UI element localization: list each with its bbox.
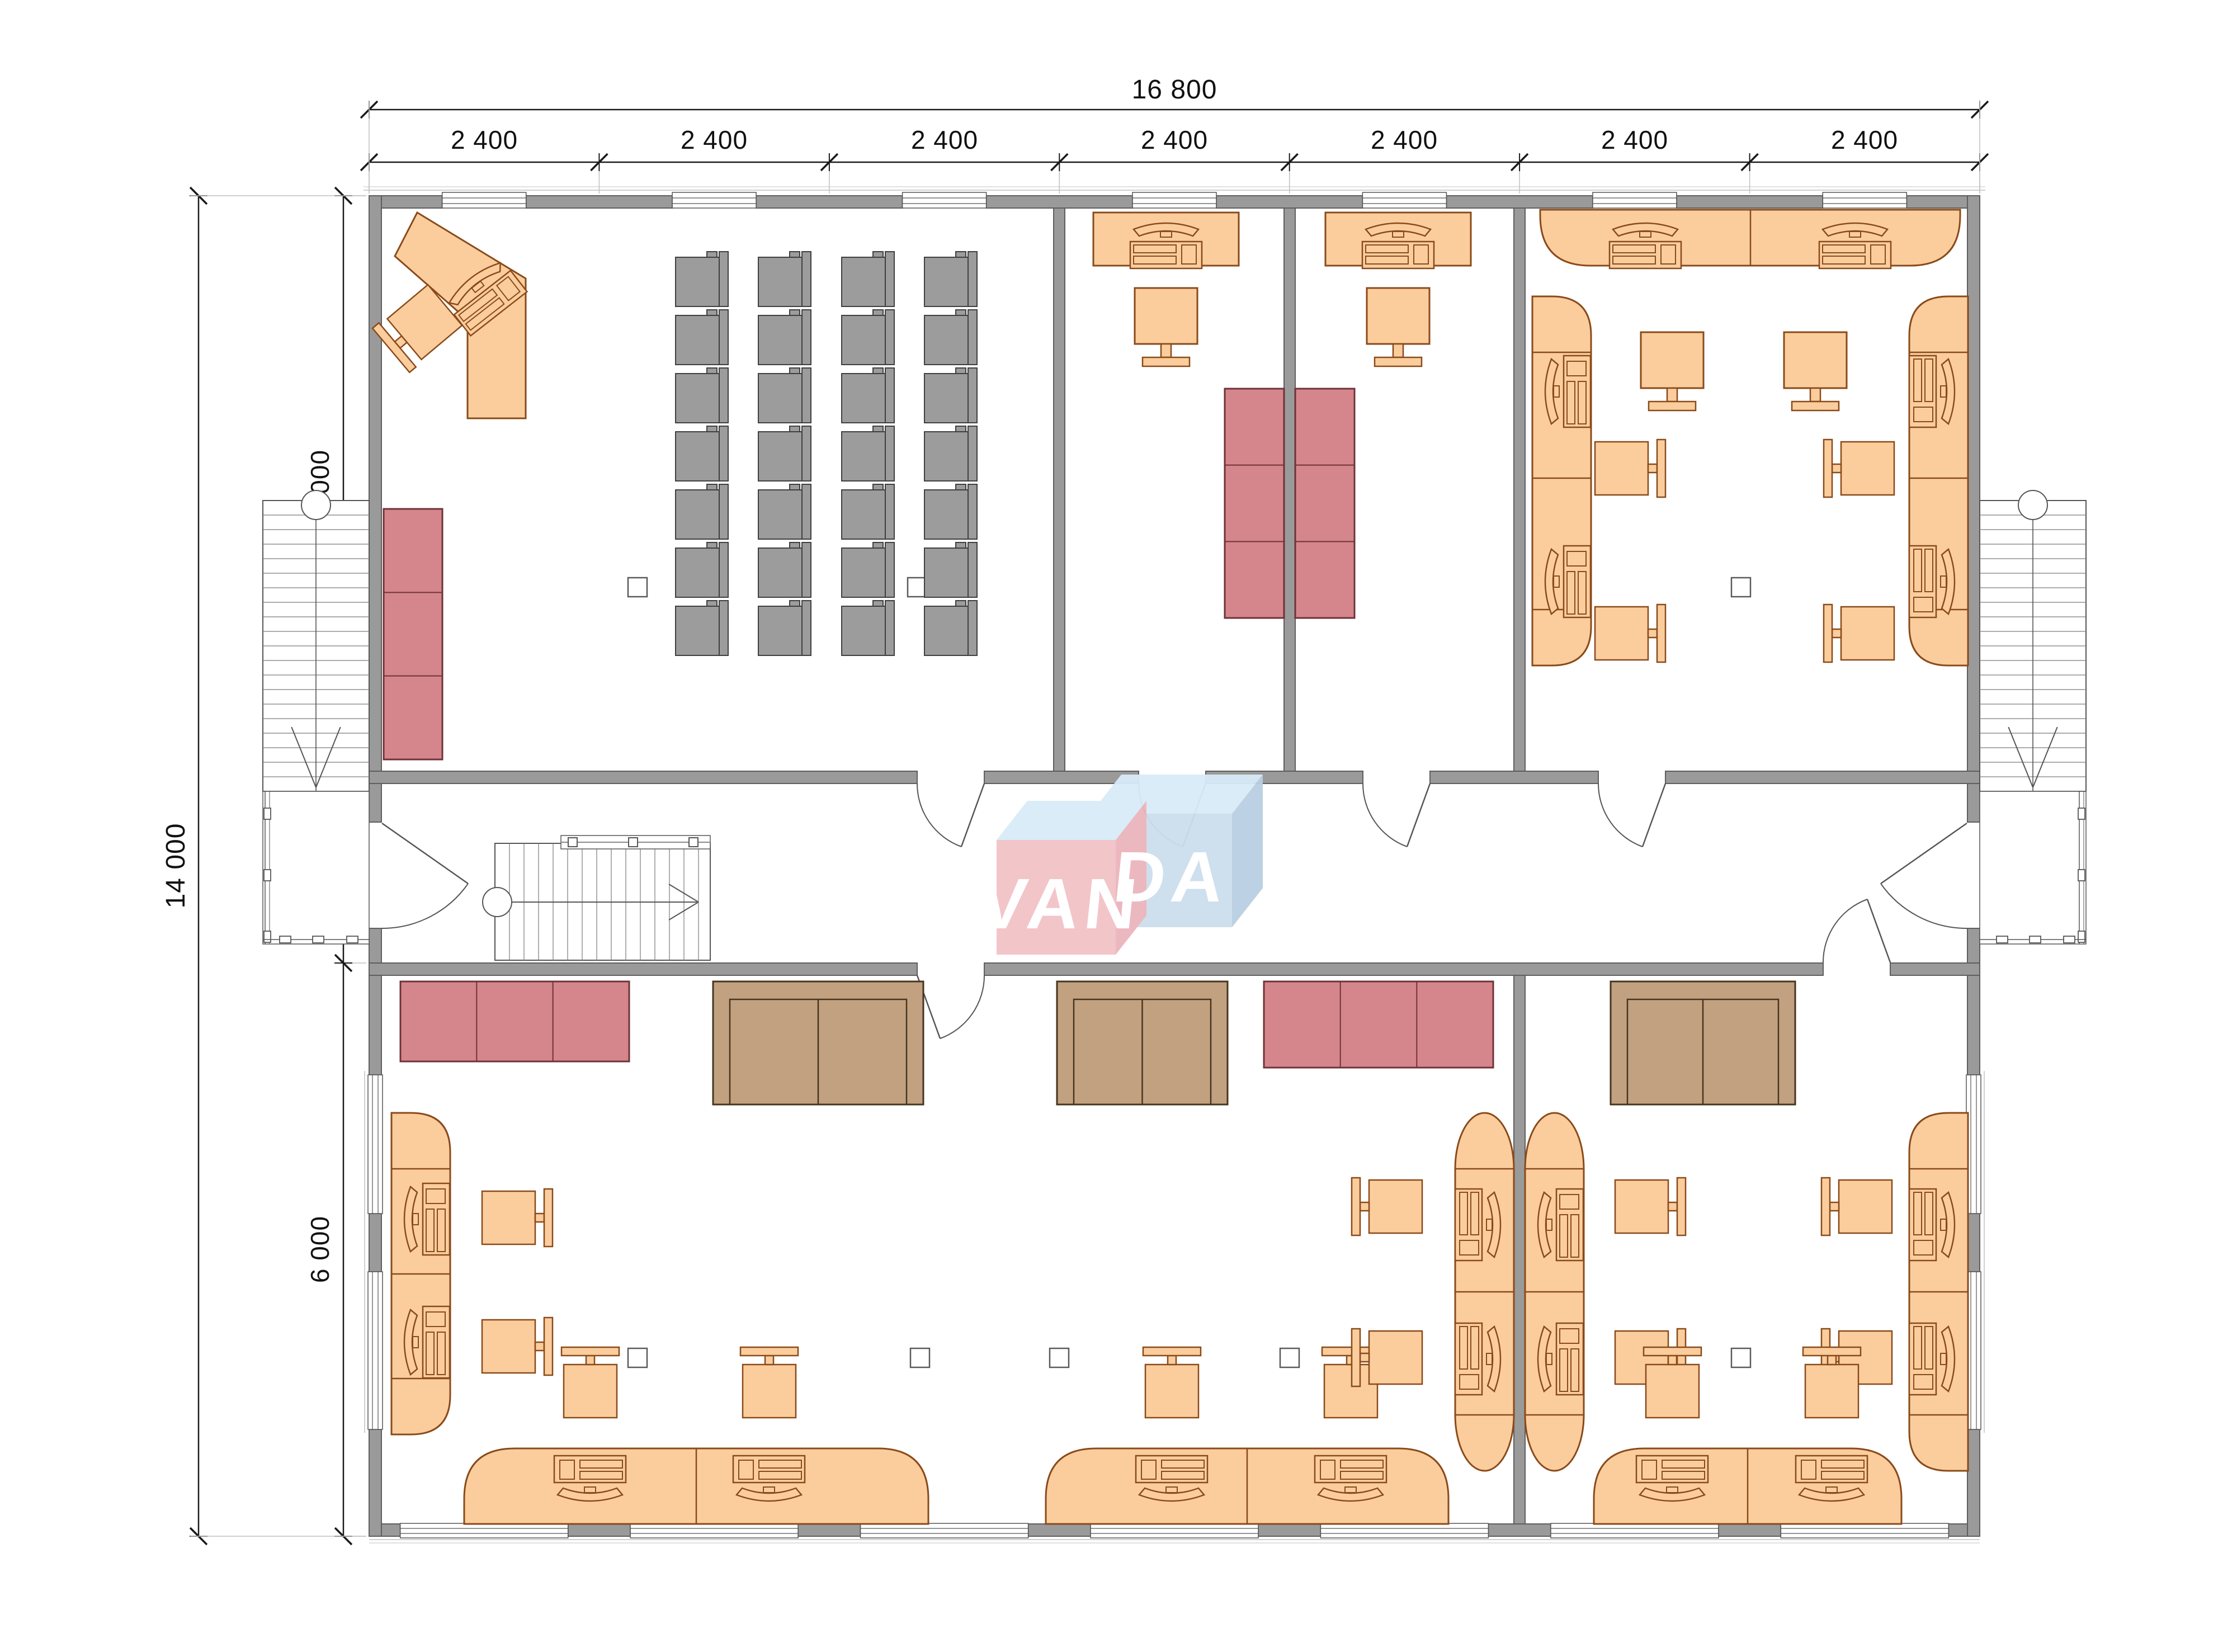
balustrade-post — [568, 838, 577, 847]
classroom-chair-icon — [924, 601, 977, 655]
desk-run — [1540, 210, 1960, 266]
window — [368, 1272, 383, 1429]
window — [1781, 1523, 1948, 1538]
railing-post — [347, 936, 358, 943]
dim-top-total: 16 800 — [1132, 75, 1217, 105]
column — [1050, 1348, 1069, 1367]
classroom-chair-icon — [842, 252, 894, 306]
classroom-chair-icon — [758, 484, 811, 539]
wall-segment — [568, 1524, 630, 1536]
exterior-staircase — [263, 490, 369, 791]
wall-segment — [1514, 975, 1525, 1524]
workstation-icon — [1538, 1323, 1583, 1395]
sofa-brown — [1057, 981, 1228, 1105]
wall-segment — [369, 196, 381, 822]
dim-top-segment: 2 400 — [1371, 125, 1438, 154]
column — [910, 1348, 929, 1367]
meeting-table-red — [1225, 389, 1284, 618]
dim-top-segment: 2 400 — [1601, 125, 1668, 154]
window — [903, 192, 987, 208]
workstation-icon — [1130, 223, 1202, 268]
stair-start-circle — [301, 490, 331, 520]
room-classroom — [372, 213, 977, 759]
window — [1823, 192, 1906, 208]
chair-icon — [561, 1347, 619, 1418]
wall-segment — [369, 928, 381, 1075]
classroom-chair-icon — [676, 542, 728, 597]
classroom-chair-icon — [924, 484, 977, 539]
porch — [263, 791, 369, 944]
desk-run — [391, 1113, 450, 1434]
door-swing-arc — [1598, 783, 1643, 847]
workstation-icon — [733, 1456, 805, 1501]
classroom-chair-icon — [758, 426, 811, 481]
chair-icon — [1352, 1178, 1422, 1235]
display-screen-icon — [1367, 288, 1429, 366]
dim-top-segment: 2 400 — [911, 125, 978, 154]
classroom-chair-icon — [758, 601, 811, 655]
workstation-icon — [1545, 546, 1591, 617]
column — [1731, 1348, 1750, 1367]
classroom-chair-icon — [842, 484, 894, 539]
display-screen-icon — [1135, 288, 1197, 366]
workstation-icon — [1610, 223, 1681, 268]
vanda-logo: VAN DA — [975, 775, 1263, 955]
workstation-icon — [1909, 356, 1955, 427]
workstation-icon — [1545, 356, 1591, 427]
meeting-table-red — [1295, 389, 1355, 618]
railing-post — [313, 936, 324, 943]
column — [1280, 1348, 1299, 1367]
workstation-icon — [1136, 1456, 1207, 1501]
desk-run — [464, 1448, 928, 1524]
classroom-chair-icon — [676, 368, 728, 423]
dim-top-segment: 2 400 — [1141, 125, 1208, 154]
sofa-red — [400, 981, 629, 1061]
wall-segment — [1967, 1429, 1980, 1536]
wall-segment — [369, 963, 917, 975]
classroom-chair-icon — [758, 542, 811, 597]
stair-start-circle — [2018, 490, 2047, 520]
wall-segment — [369, 771, 917, 783]
classroom-chair-icon — [676, 601, 728, 655]
railing-post — [2078, 808, 2085, 819]
wall-segment — [987, 196, 1132, 208]
balustrade-post — [689, 838, 698, 847]
workstation-icon — [1636, 1456, 1708, 1501]
chair-icon — [1143, 1347, 1201, 1418]
dim-top-segment: 2 400 — [451, 125, 518, 154]
railing-post — [280, 936, 291, 943]
column — [908, 578, 927, 597]
wall-segment — [1446, 196, 1593, 208]
window — [1132, 192, 1216, 208]
wall-segment — [756, 196, 903, 208]
floor-plan-drawing: 16 800 2 400 2 400 2 400 2 400 2 400 2 4… — [0, 0, 2237, 1652]
desk-pod — [1455, 1113, 1514, 1471]
chair-icon — [1824, 605, 1894, 662]
classroom-chair-icon — [842, 601, 894, 655]
classroom-chair-icon — [758, 310, 811, 365]
wall-segment — [984, 771, 1139, 783]
workstation-icon — [1909, 546, 1955, 617]
window — [400, 1523, 568, 1538]
classroom-chair-icon — [924, 368, 977, 423]
workstation-icon — [1909, 1323, 1955, 1395]
wall-segment — [526, 196, 672, 208]
door-swing-arc — [1823, 899, 1867, 962]
floor-plan-page: 16 800 2 400 2 400 2 400 2 400 2 400 2 4… — [0, 0, 2237, 1652]
room-office-1 — [1093, 213, 1284, 618]
dim-left-segment: 6 000 — [305, 1216, 334, 1283]
window — [672, 192, 756, 208]
wall-segment — [369, 1429, 381, 1536]
wall-segment — [1719, 1524, 1781, 1536]
display-screen-icon — [1641, 332, 1703, 410]
workstation-icon — [554, 1456, 626, 1501]
display-screen-icon — [1784, 332, 1847, 410]
railing-post — [2078, 931, 2085, 942]
chair-icon — [1595, 605, 1665, 662]
dim-left-total: 14 000 — [161, 823, 191, 909]
wall-segment — [984, 963, 1823, 975]
window — [1593, 192, 1677, 208]
corridor-staircase — [483, 836, 710, 960]
railing-post — [2030, 936, 2041, 943]
door-swing-arc — [1363, 783, 1407, 847]
workstation-icon — [404, 1306, 450, 1378]
wall-segment — [369, 1214, 381, 1272]
desk-run — [1909, 1113, 1968, 1471]
window — [442, 192, 526, 208]
dim-top-segment: 2 400 — [681, 125, 748, 154]
desk-run — [1046, 1448, 1448, 1524]
workstation-icon — [1455, 1189, 1500, 1261]
railing-post — [264, 931, 271, 942]
room-open-office-left — [391, 981, 1514, 1524]
sofa-red — [384, 509, 442, 759]
wall-segment — [1028, 1524, 1091, 1536]
stair-start-circle — [483, 888, 512, 917]
classroom-chair-icon — [842, 426, 894, 481]
workstation-icon — [1819, 223, 1891, 268]
door-swing-arc — [940, 975, 984, 1039]
porch — [1980, 791, 2086, 944]
window — [1091, 1523, 1258, 1538]
sofa-red — [1264, 981, 1493, 1068]
railing-post — [264, 870, 271, 881]
wall-segment — [1967, 928, 1980, 1075]
workstation-icon — [1362, 223, 1434, 268]
sofa-brown — [1611, 981, 1795, 1105]
workstation-icon — [1315, 1456, 1386, 1501]
wall-segment — [1890, 963, 1980, 975]
door-swing-arc — [382, 884, 468, 928]
chair-icon — [740, 1347, 798, 1418]
classroom-chair-icon — [676, 310, 728, 365]
window — [1362, 192, 1446, 208]
chair-icon — [1824, 440, 1894, 497]
railing-post — [264, 808, 271, 819]
wall-segment — [1677, 196, 1823, 208]
window — [861, 1523, 1028, 1538]
railing-post — [2064, 936, 2075, 943]
column — [628, 578, 647, 597]
door-swing-arc — [917, 783, 961, 847]
wall-segment — [1284, 208, 1295, 771]
wall-segment — [1054, 208, 1065, 771]
exterior-staircase — [1980, 490, 2086, 791]
workstation-icon — [1796, 1456, 1867, 1501]
wall-segment — [1967, 1214, 1980, 1272]
classroom-chair-icon — [924, 542, 977, 597]
railing-post — [1997, 936, 2008, 943]
workstation-icon — [1538, 1189, 1583, 1261]
classroom-chair-icon — [842, 542, 894, 597]
balustrade-post — [629, 838, 638, 847]
room-open-office-right — [1525, 981, 1968, 1524]
wall-segment — [1430, 771, 1598, 783]
classroom-chair-icon — [924, 310, 977, 365]
column — [628, 1348, 647, 1367]
column — [1731, 578, 1750, 597]
chair-icon — [482, 1189, 553, 1247]
workstation-icon — [1909, 1189, 1955, 1261]
window — [1551, 1523, 1719, 1538]
classroom-chair-icon — [676, 426, 728, 481]
classroom-chair-icon — [758, 252, 811, 306]
workstation-icon — [404, 1183, 450, 1255]
sofa-brown — [713, 981, 923, 1105]
classroom-chair-icon — [758, 368, 811, 423]
chair-icon — [1615, 1178, 1686, 1235]
wall-segment — [1665, 771, 1980, 783]
window — [1320, 1523, 1488, 1538]
classroom-chair-icon — [842, 310, 894, 365]
wall-segment — [1216, 196, 1362, 208]
workstation-icon — [1455, 1323, 1500, 1395]
classroom-chair-icon — [924, 426, 977, 481]
wall-segment — [798, 1524, 861, 1536]
railing-post — [2078, 870, 2085, 881]
wall-segment — [1967, 196, 1980, 822]
classroom-chair-icon — [676, 484, 728, 539]
room-office-2 — [1295, 213, 1471, 618]
wall-segment — [1488, 1524, 1551, 1536]
classroom-chair-icon — [676, 252, 728, 306]
door-swing-arc — [1881, 884, 1967, 928]
desk-pod — [1525, 1113, 1584, 1471]
window — [630, 1523, 798, 1538]
chair-icon — [482, 1318, 553, 1375]
wall-segment — [1514, 208, 1525, 771]
chair-icon — [1595, 440, 1665, 497]
dim-top-segment: 2 400 — [1831, 125, 1898, 154]
chair-icon — [1821, 1178, 1892, 1235]
wall-segment — [1258, 1524, 1320, 1536]
window — [368, 1075, 383, 1214]
logo-text-da: DA — [1110, 837, 1233, 917]
classroom-chair-icon — [924, 252, 977, 306]
classroom-chair-icon — [842, 368, 894, 423]
